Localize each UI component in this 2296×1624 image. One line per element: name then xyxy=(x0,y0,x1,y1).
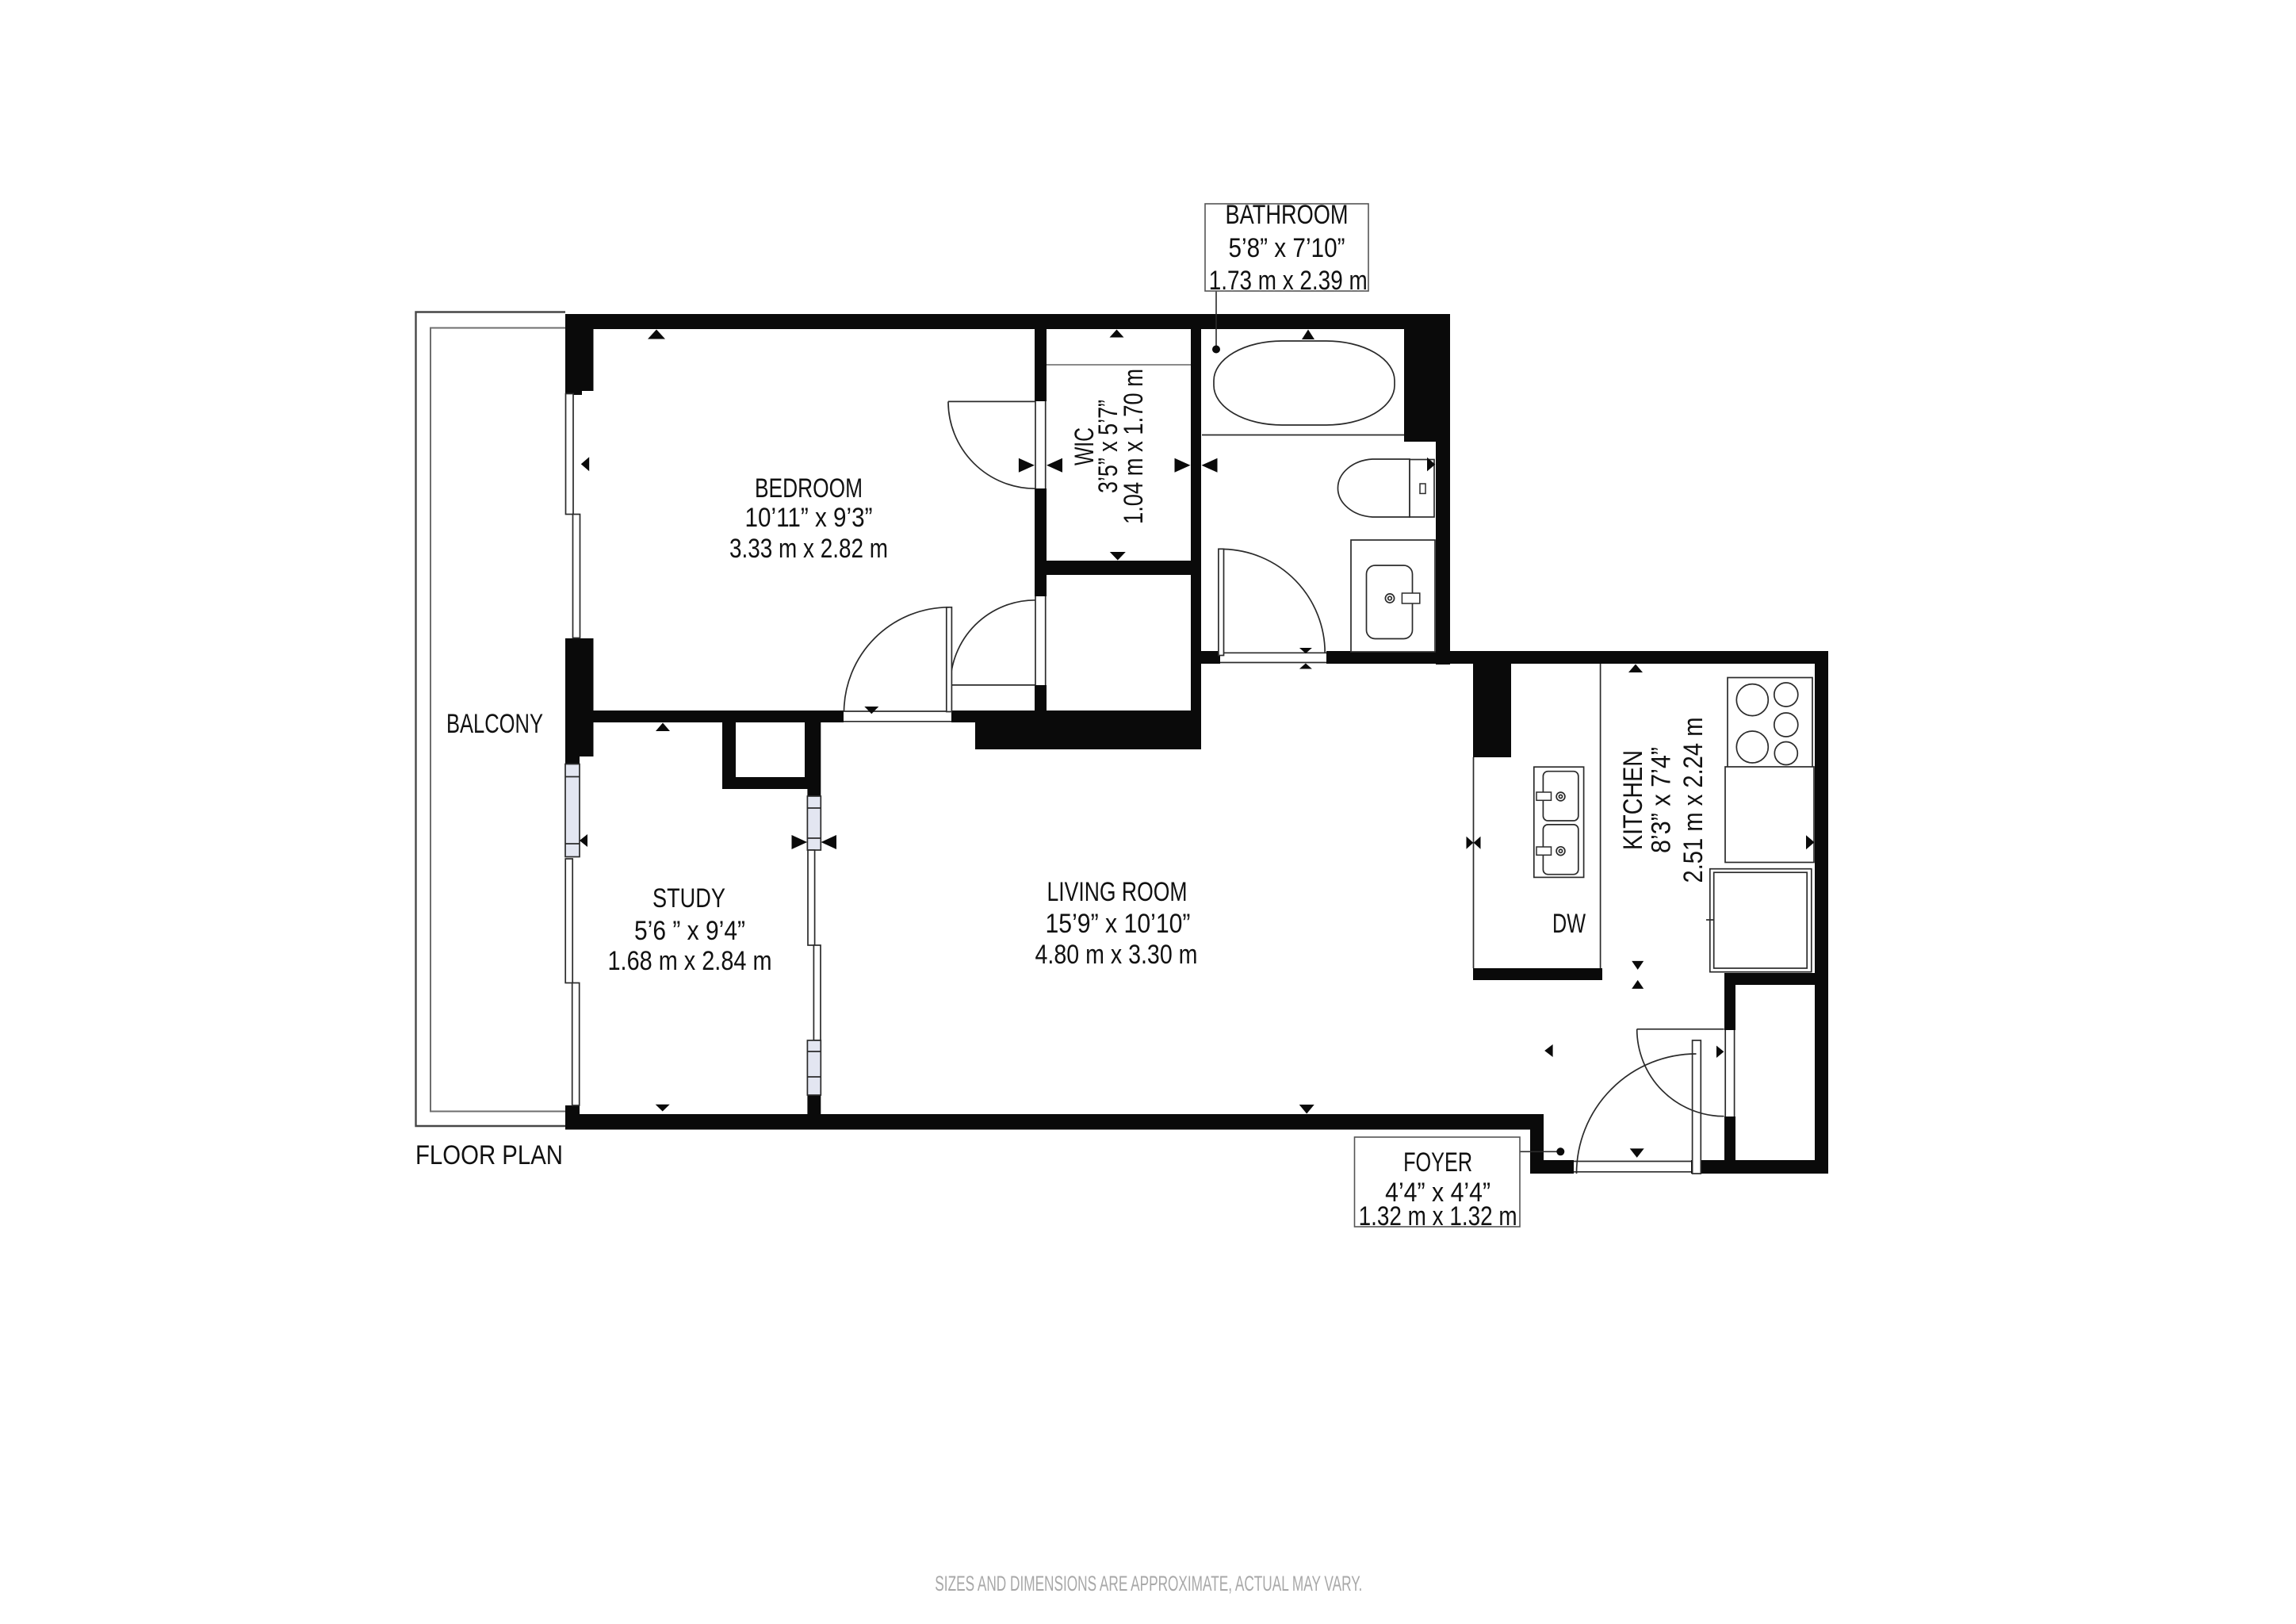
svg-text:LIVING ROOM: LIVING ROOM xyxy=(1047,877,1188,907)
svg-text:FOYER: FOYER xyxy=(1403,1147,1472,1178)
svg-text:KITCHEN: KITCHEN xyxy=(1618,750,1648,850)
svg-text:BATHROOM: BATHROOM xyxy=(1226,200,1349,230)
svg-text:1.73 m x 2.39 m: 1.73 m x 2.39 m xyxy=(1209,266,1368,296)
svg-text:5’8” x 7’10”: 5’8” x 7’10” xyxy=(1229,233,1345,263)
svg-text:3.33 m x 2.82 m: 3.33 m x 2.82 m xyxy=(729,534,888,564)
svg-text:10’11” x 9’3”: 10’11” x 9’3” xyxy=(745,503,873,533)
svg-text:8’3” x 7’4”: 8’3” x 7’4” xyxy=(1647,747,1677,853)
svg-text:5’6 ” x 9’4”: 5’6 ” x 9’4” xyxy=(634,916,745,946)
svg-text:4.80 m x 3.30 m: 4.80 m x 3.30 m xyxy=(1035,940,1198,970)
svg-text:BALCONY: BALCONY xyxy=(446,709,543,739)
svg-text:BEDROOM: BEDROOM xyxy=(755,473,863,504)
svg-text:2.51 m x 2.24 m: 2.51 m x 2.24 m xyxy=(1678,718,1709,883)
svg-text:DW: DW xyxy=(1552,909,1586,939)
svg-text:1.04 m x 1.70 m: 1.04 m x 1.70 m xyxy=(1119,369,1149,524)
svg-text:15’9” x 10’10”: 15’9” x 10’10” xyxy=(1046,909,1191,939)
svg-text:SIZES AND DIMENSIONS ARE APPRO: SIZES AND DIMENSIONS ARE APPROXIMATE, AC… xyxy=(935,1572,1362,1595)
svg-text:FLOOR PLAN: FLOOR PLAN xyxy=(415,1140,563,1170)
svg-text:1.32 m x 1.32 m: 1.32 m x 1.32 m xyxy=(1359,1201,1517,1231)
svg-text:STUDY: STUDY xyxy=(652,883,725,913)
svg-text:1.68 m x 2.84 m: 1.68 m x 2.84 m xyxy=(608,946,772,976)
